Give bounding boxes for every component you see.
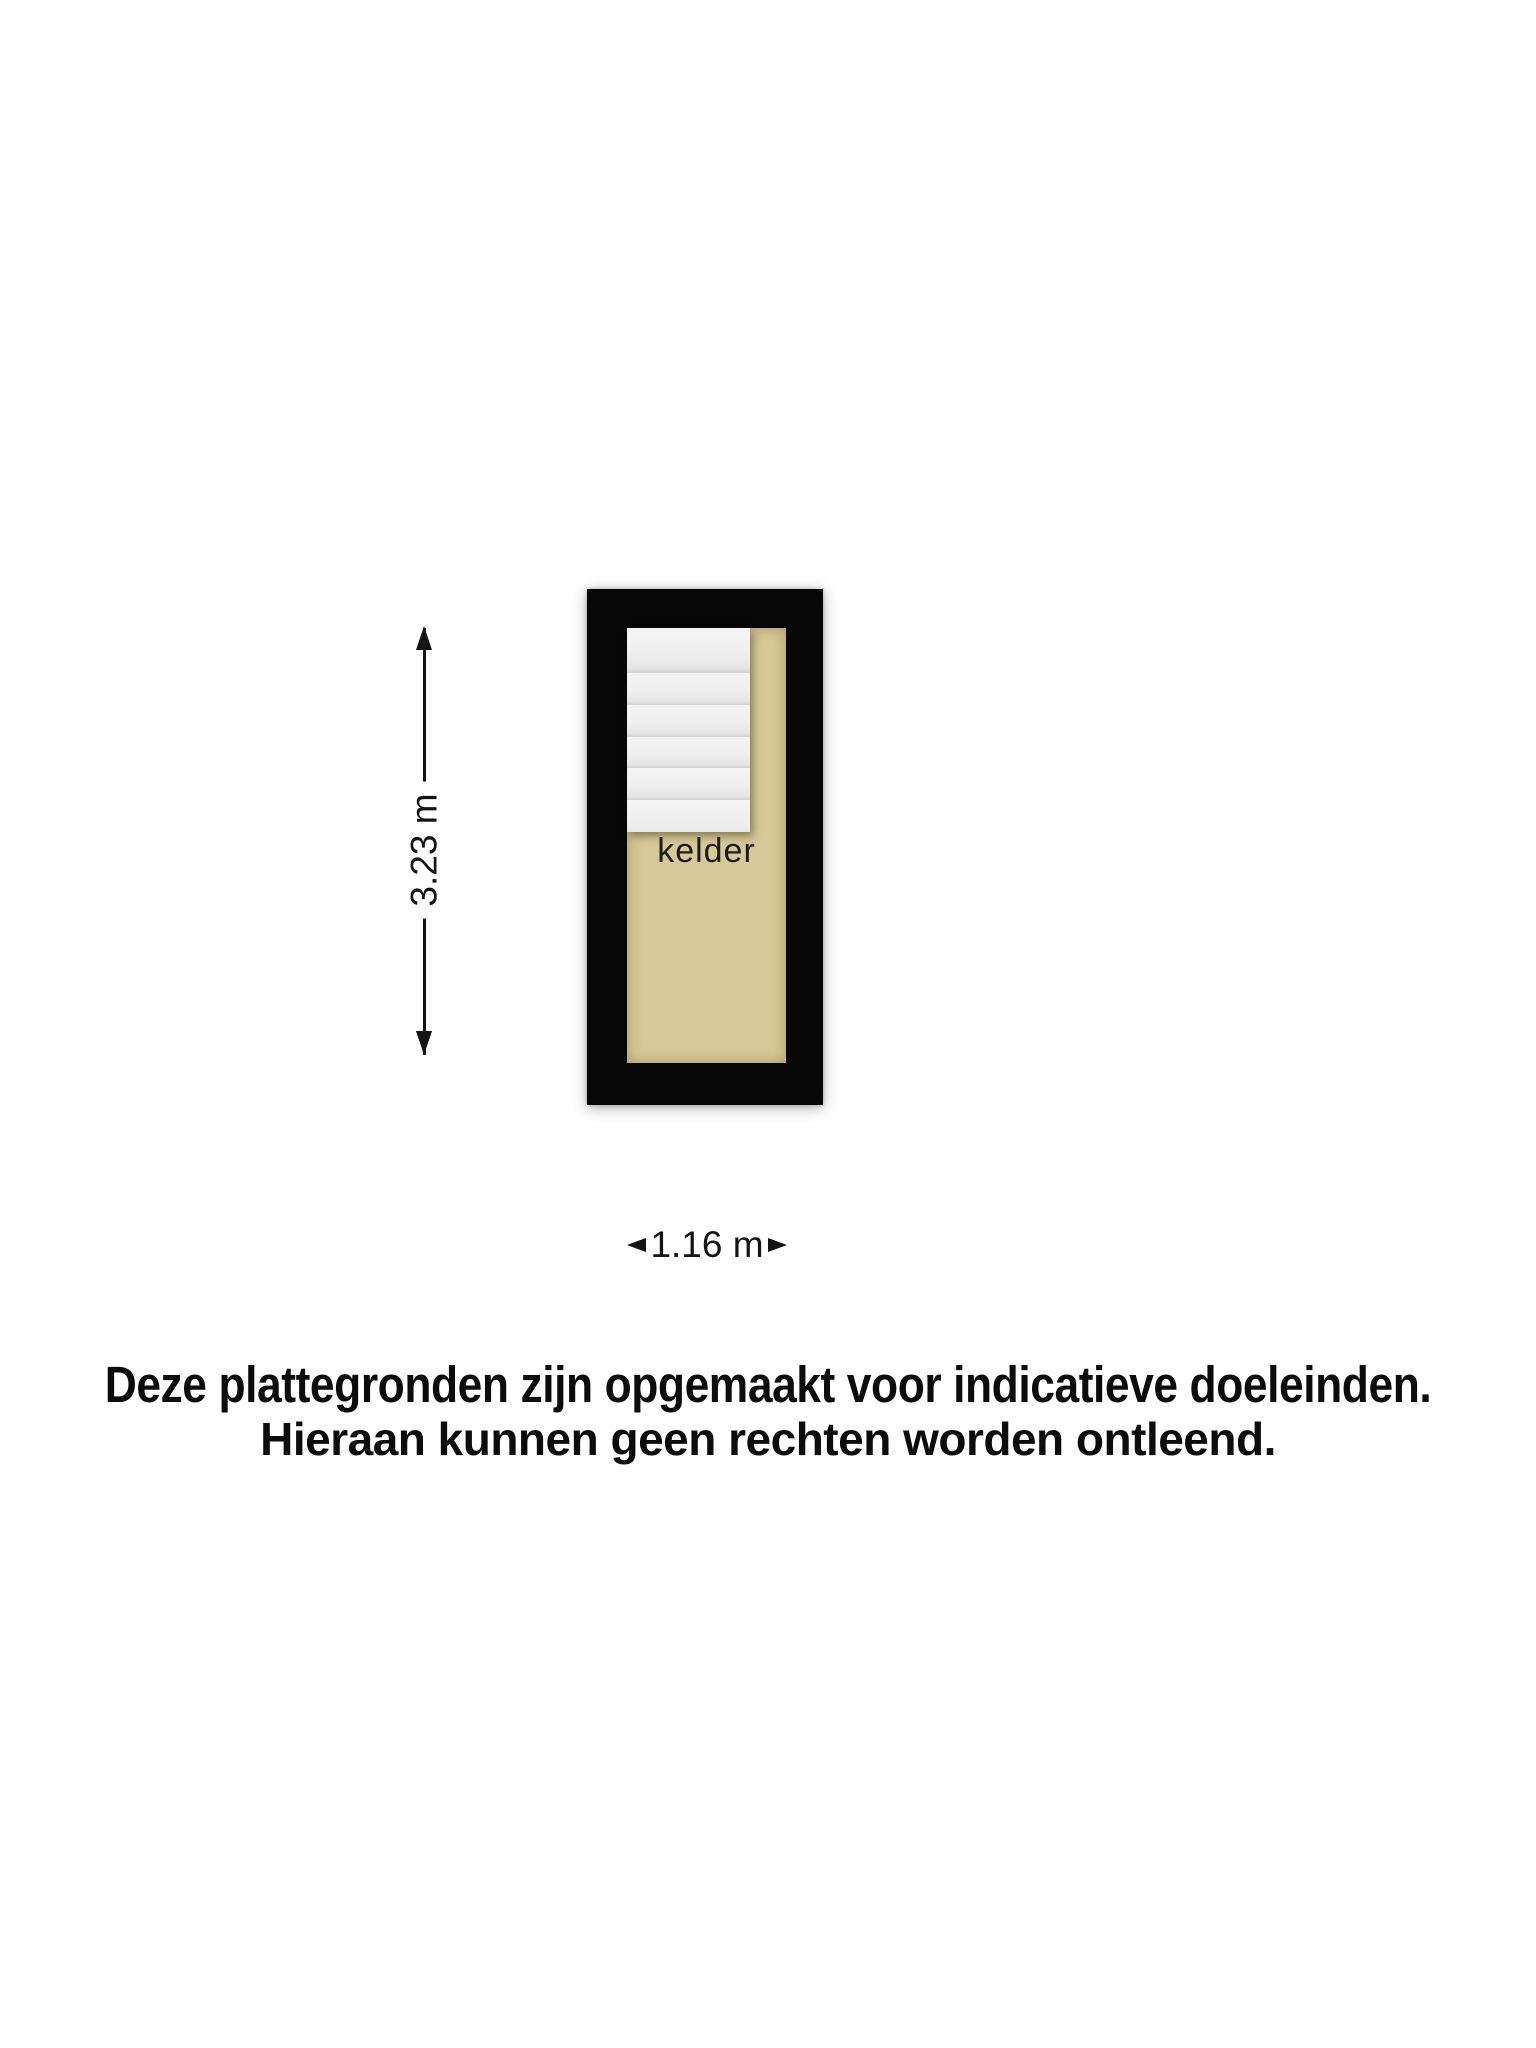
stair-step — [627, 768, 750, 800]
disclaimer-line-1: Deze plattegronden zijn opgemaakt voor i… — [100, 1356, 1436, 1413]
arrow-down-icon — [416, 1031, 432, 1055]
disclaimer-line-2: Hieraan kunnen geen rechten worden ontle… — [0, 1413, 1536, 1465]
floorplan-page: kelder 3.23 m 1.16 m Deze plattegronden … — [0, 0, 1536, 2048]
disclaimer: Deze plattegronden zijn opgemaakt voor i… — [0, 1356, 1536, 1465]
stair-step — [627, 628, 750, 673]
stair-step — [627, 673, 750, 705]
room-label: kelder — [627, 834, 786, 868]
height-dimension-label: 3.23 m — [400, 781, 449, 918]
width-dimension-label: 1.16 m — [627, 1226, 787, 1263]
staircase — [627, 628, 750, 832]
stair-step — [627, 705, 750, 737]
arrow-up-icon — [416, 626, 432, 650]
stair-step — [627, 800, 750, 832]
stair-step — [627, 737, 750, 769]
basement-floor: kelder — [627, 628, 786, 1063]
floorplan-outer-wall: kelder — [587, 589, 823, 1105]
arrow-right-icon — [768, 1238, 787, 1252]
